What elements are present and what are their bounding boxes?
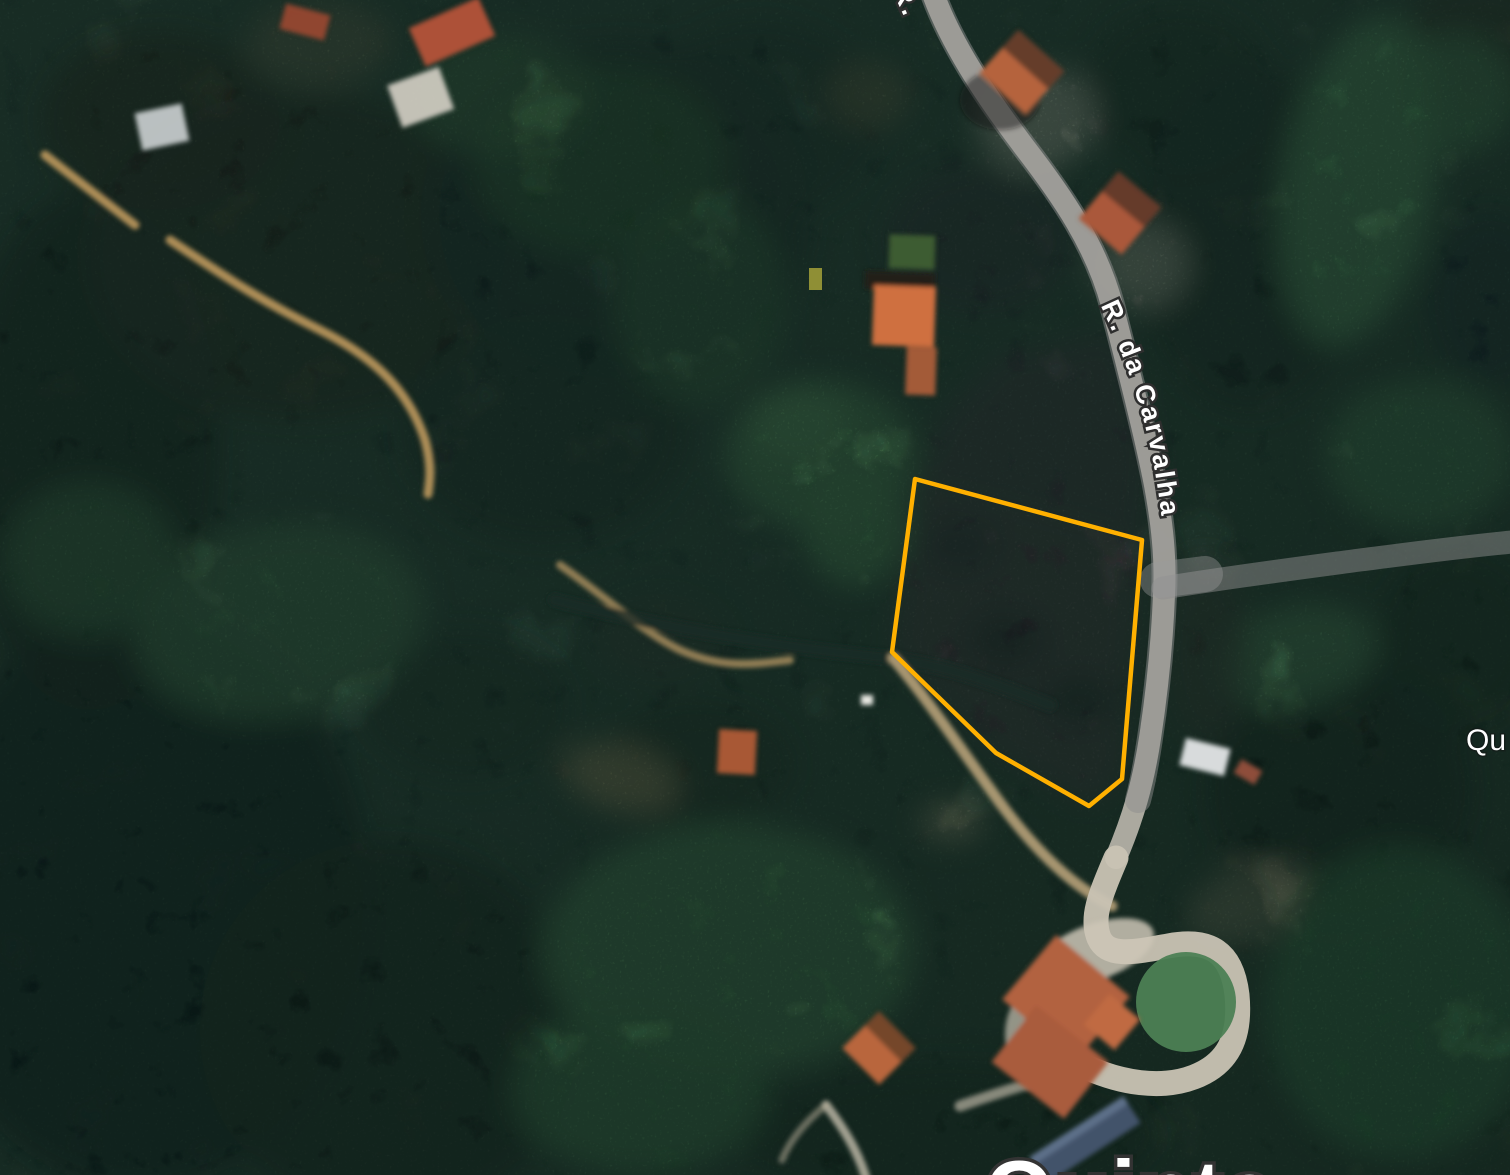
olive-marker [809,268,822,290]
place-label-bottom-partial: Quinta [985,1142,1276,1175]
road-overlay-cap [1158,574,1205,580]
map-viewport[interactable]: R. R. da Carvalha Qu Quinta [0,0,1510,1175]
house-roof [872,285,936,347]
outbuilding [888,234,935,270]
satellite-map[interactable]: R. R. da Carvalha Qu Quinta [0,0,1510,1175]
road-loop-island [1136,952,1236,1052]
place-label-right-partial: Qu [1466,724,1506,757]
terrain-texture [0,0,1510,1175]
house-roof [717,729,757,775]
